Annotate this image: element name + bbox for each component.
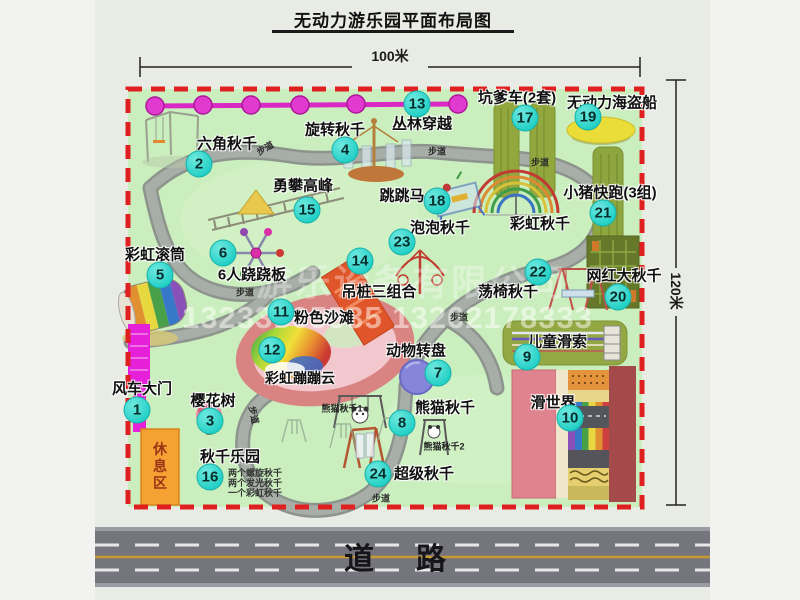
page-title: 无动力游乐园平面布局图 <box>294 7 492 32</box>
attraction-badge: 14 <box>347 248 374 275</box>
attraction-badge: 7 <box>425 360 452 387</box>
attraction-label: 旋转秋千 <box>305 119 365 140</box>
height-dimension-label: 120米 <box>666 272 686 309</box>
attraction-badge: 4 <box>332 137 359 164</box>
swing-park-item-list: 两个螺旋秋千 两个发光秋千 一个彩虹秋千 <box>228 468 282 498</box>
attraction-badge: 23 <box>389 229 416 256</box>
attraction-badge: 24 <box>365 461 392 488</box>
attraction-label: 小猪快跑(3组) <box>563 182 656 203</box>
footpath-label: 步道 <box>236 286 254 299</box>
attraction-label: 6人跷跷板 <box>218 264 286 285</box>
panda-swing-1-label: 熊猫秋千1 <box>321 402 362 415</box>
swing-park-item: 两个发光秋千 <box>228 478 282 488</box>
attraction-label: 网红大秋千 <box>586 265 661 286</box>
rest-area-label: 休息区 <box>150 442 170 493</box>
attraction-badge: 15 <box>294 197 321 224</box>
attraction-label: 坑爹车(2套) <box>478 87 556 108</box>
attraction-badge: 9 <box>514 344 541 371</box>
attraction-badge: 22 <box>525 259 552 286</box>
attraction-badge: 3 <box>197 408 224 435</box>
attraction-badge: 18 <box>424 188 451 215</box>
panda-swing-2-label: 熊猫秋千2 <box>423 440 464 453</box>
playground-map-image: 无动力游乐园平面布局图 100米 120米 游乐设备有限公司 132338055… <box>0 0 800 600</box>
attraction-label: 泡泡秋千 <box>410 217 470 238</box>
attraction-badge: 10 <box>557 405 584 432</box>
attraction-badge: 11 <box>268 299 295 326</box>
attraction-label: 风车大门 <box>112 378 172 399</box>
swing-park-item: 一个彩虹秋千 <box>228 488 282 498</box>
attraction-badge: 2 <box>186 151 213 178</box>
attraction-label: 六角秋千 <box>197 133 257 154</box>
title-underline <box>272 30 514 33</box>
attraction-badge: 6 <box>210 240 237 267</box>
attraction-badge: 20 <box>605 284 632 311</box>
attraction-badge: 16 <box>197 464 224 491</box>
footpath-label: 步道 <box>372 492 390 505</box>
attraction-badge: 12 <box>259 337 286 364</box>
footpath-label: 步道 <box>428 145 446 158</box>
attraction-label: 动物转盘 <box>386 340 446 361</box>
attraction-label: 跳跳马 <box>379 185 424 206</box>
attraction-label: 荡椅秋千 <box>478 281 538 302</box>
attraction-label: 彩虹蹦蹦云 <box>265 368 335 388</box>
swing-park-item: 两个螺旋秋千 <box>228 468 282 478</box>
attraction-badge: 13 <box>404 91 431 118</box>
attraction-badge: 8 <box>389 410 416 437</box>
attraction-label: 超级秋千 <box>394 463 454 484</box>
road-label: 道路 <box>344 534 488 578</box>
attraction-label: 熊猫秋千 <box>415 397 475 418</box>
footpath-label: 步道 <box>531 156 549 169</box>
attraction-badge: 21 <box>590 200 617 227</box>
rainbow-swing-label: 彩虹秋千 <box>510 213 570 234</box>
attraction-badge: 5 <box>147 262 174 289</box>
attraction-badge: 1 <box>124 397 151 424</box>
attraction-badge: 19 <box>575 104 602 131</box>
attraction-label: 粉色沙滩 <box>294 307 354 328</box>
attraction-badge: 17 <box>512 105 539 132</box>
attraction-label: 勇攀高峰 <box>273 175 333 196</box>
width-dimension-label: 100米 <box>371 46 408 66</box>
attraction-label: 吊桩三组合 <box>341 281 416 302</box>
footpath-label: 步道 <box>450 311 468 324</box>
